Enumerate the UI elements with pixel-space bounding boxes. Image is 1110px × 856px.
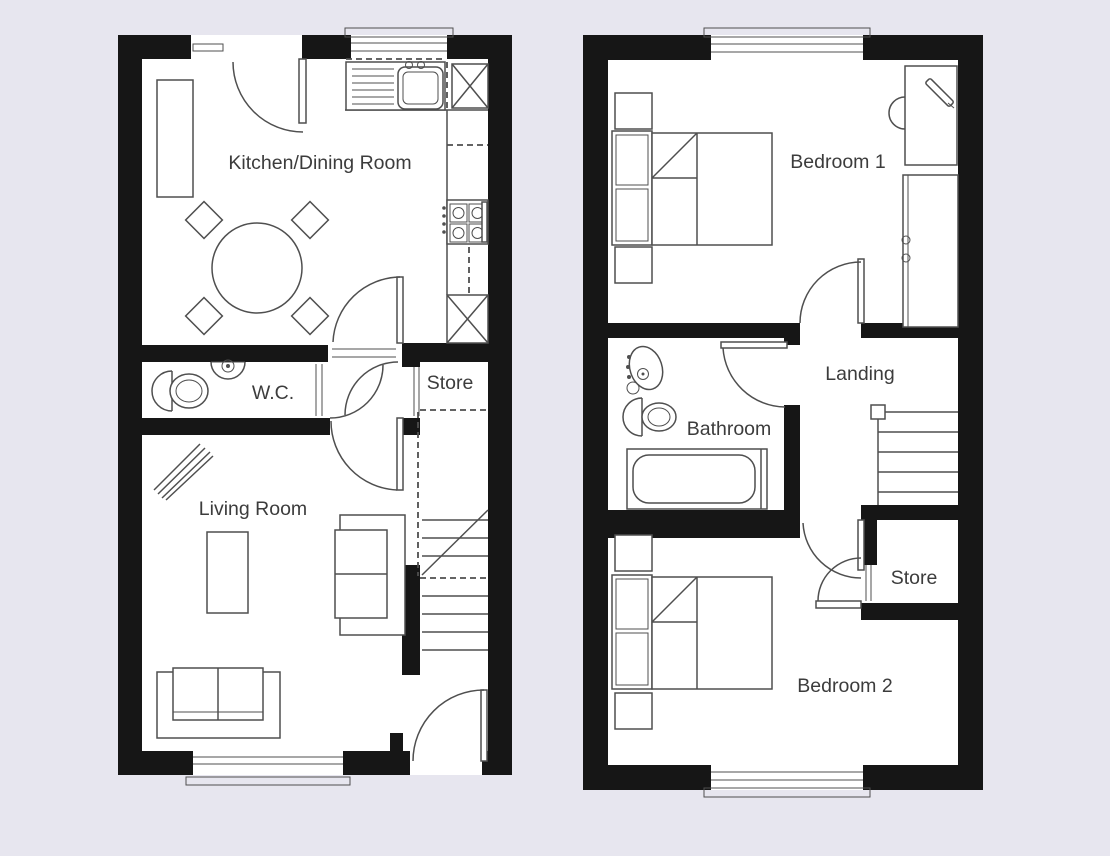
room-label-kitchen-dining: Kitchen/Dining Room	[228, 152, 411, 174]
wardrobe-icon	[902, 175, 958, 327]
window-icon	[704, 28, 870, 60]
window-icon	[191, 35, 225, 59]
room-label-store-ground: Store	[427, 372, 474, 394]
room-label-living: Living Room	[199, 498, 307, 520]
hob-icon	[442, 200, 488, 244]
floorplan-image: Kitchen/Dining Room W.C. Store Living Ro…	[0, 0, 1110, 856]
appliance-icon	[452, 64, 488, 108]
coffee-table-icon	[207, 532, 248, 613]
room-label-bedroom2: Bedroom 2	[797, 675, 892, 697]
window-icon	[704, 765, 870, 797]
window-icon	[345, 28, 453, 59]
sofa-icon	[157, 668, 280, 738]
ground-floor-plan: Kitchen/Dining Room W.C. Store Living Ro…	[118, 28, 512, 785]
sofa-icon	[335, 515, 405, 635]
window-icon	[186, 751, 350, 785]
kitchen-unit	[157, 80, 193, 197]
room-label-store-first: Store	[891, 567, 938, 589]
room-label-bedroom1: Bedroom 1	[790, 151, 885, 173]
first-floor-plan: Bedroom 1 Landing Bathroom Store Bedroom…	[583, 28, 983, 797]
room-label-landing: Landing	[825, 363, 894, 385]
bathtub-icon	[627, 449, 767, 509]
room-label-bathroom: Bathroom	[687, 418, 772, 440]
appliance-icon	[447, 295, 488, 343]
room-label-wc: W.C.	[252, 382, 294, 404]
